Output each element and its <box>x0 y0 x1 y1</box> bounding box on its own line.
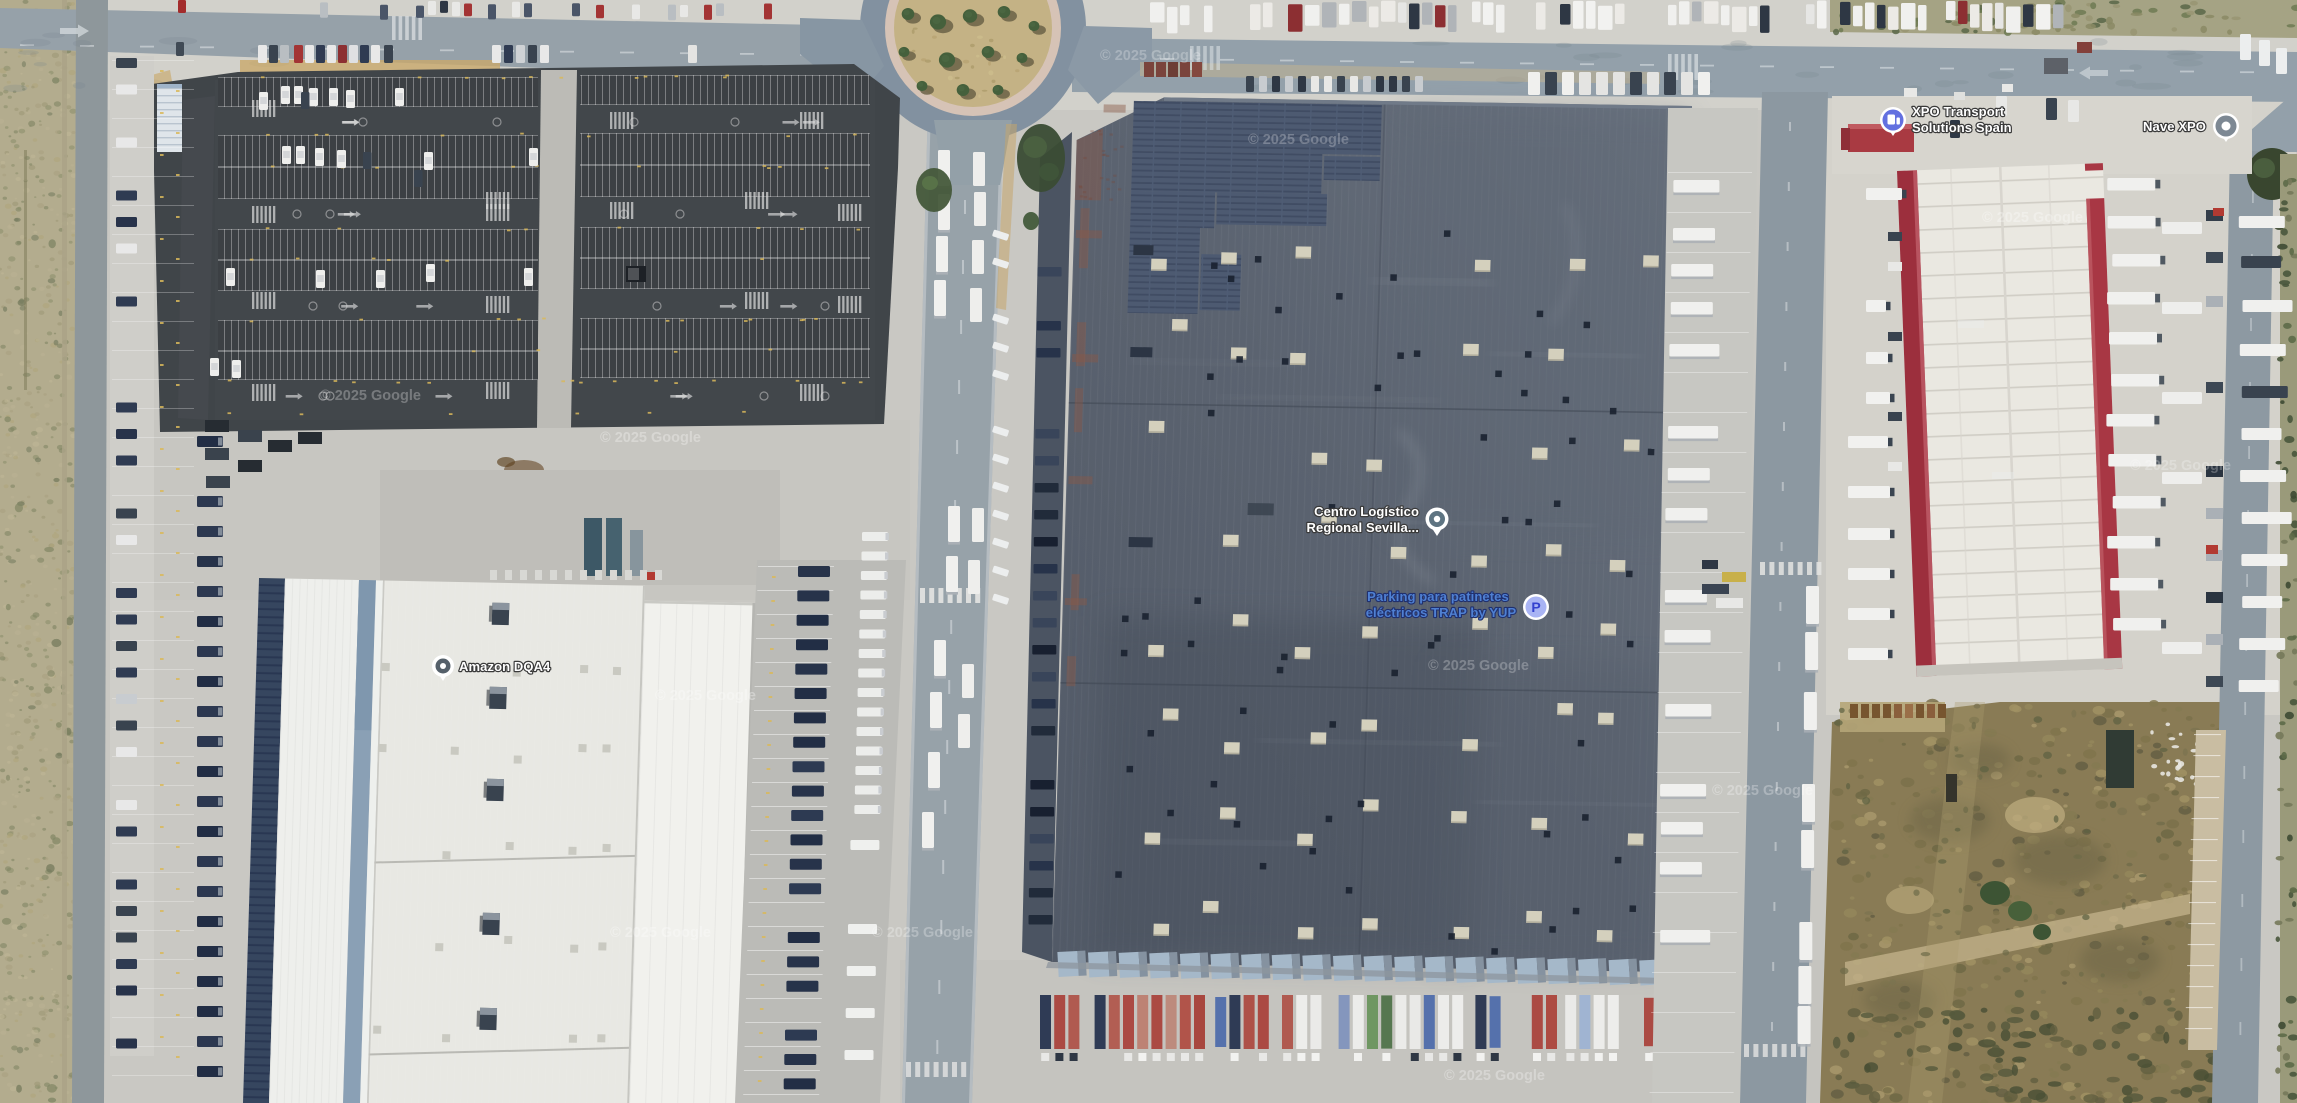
svg-text:Centro Logístico: Centro Logístico <box>1314 504 1419 519</box>
svg-text:eléctricos TRAP by YUP: eléctricos TRAP by YUP <box>1366 605 1517 620</box>
svg-text:© 2025 Google: © 2025 Google <box>320 388 421 404</box>
svg-text:© 2025 Google: © 2025 Google <box>600 430 701 446</box>
svg-text:© 2025 Google: © 2025 Google <box>1444 1068 1545 1084</box>
svg-text:© 2025 Google: © 2025 Google <box>610 925 711 941</box>
svg-text:© 2025 Google: © 2025 Google <box>2130 458 2231 474</box>
svg-text:XPO Transport: XPO Transport <box>1912 104 2005 119</box>
svg-text:Parking para patinetes: Parking para patinetes <box>1367 589 1509 604</box>
svg-text:Nave XPO: Nave XPO <box>2143 119 2206 134</box>
svg-text:© 2025 Google: © 2025 Google <box>1428 658 1529 674</box>
svg-text:© 2025 Google: © 2025 Google <box>655 688 756 704</box>
svg-text:© 2025 Google: © 2025 Google <box>1100 48 1201 64</box>
svg-text:© 2025 Google: © 2025 Google <box>1982 210 2083 226</box>
svg-text:© 2025 Google: © 2025 Google <box>872 925 973 941</box>
svg-text:© 2025 Google: © 2025 Google <box>1248 132 1349 148</box>
svg-text:© 2025 Google: © 2025 Google <box>1712 783 1813 799</box>
svg-text:Regional Sevilla...: Regional Sevilla... <box>1307 520 1419 535</box>
svg-text:Amazon DQA4: Amazon DQA4 <box>459 659 551 674</box>
svg-text:P: P <box>1531 599 1540 615</box>
svg-text:Solutions Spain: Solutions Spain <box>1912 120 2012 135</box>
